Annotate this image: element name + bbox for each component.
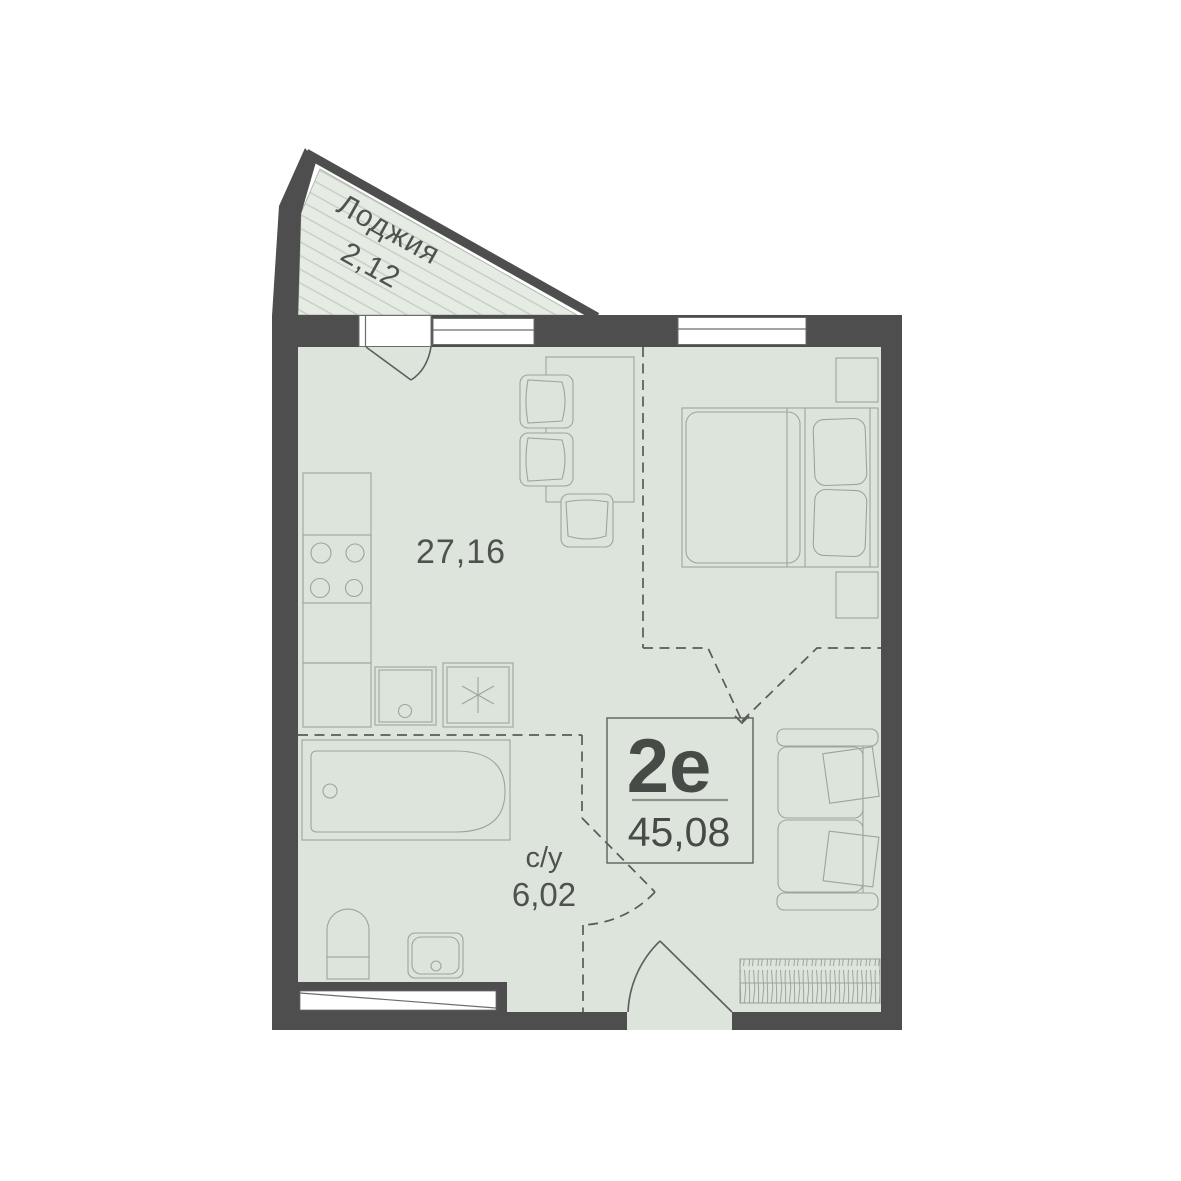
main-room-area-label: 27,16 [416,533,506,571]
entrance-threshold [627,1012,732,1030]
bottom-wall-left [272,1012,627,1030]
chair [520,375,573,428]
right-wall [881,315,902,1030]
left-wall [272,315,298,1030]
floorplan-page: { "plan": { "title": "apartment-floorpla… [0,0,1181,1181]
bottom-wall-right [732,1012,902,1030]
unit-type-label: 2е [627,724,712,809]
apartment-floor [298,347,881,1012]
chair [520,433,573,486]
bathroom-label: с/у [525,842,563,874]
total-area-label: 45,08 [628,809,731,855]
window-left [433,319,534,345]
loggia: Лоджия 2,12 [272,148,597,317]
floorplan-drawing: Лоджия 2,12 [0,0,1181,1181]
wardrobe [740,959,880,1003]
vent-niche [300,991,496,1010]
window-right [678,318,806,345]
bathroom-area-label: 6,02 [512,876,576,913]
chair [561,494,613,547]
